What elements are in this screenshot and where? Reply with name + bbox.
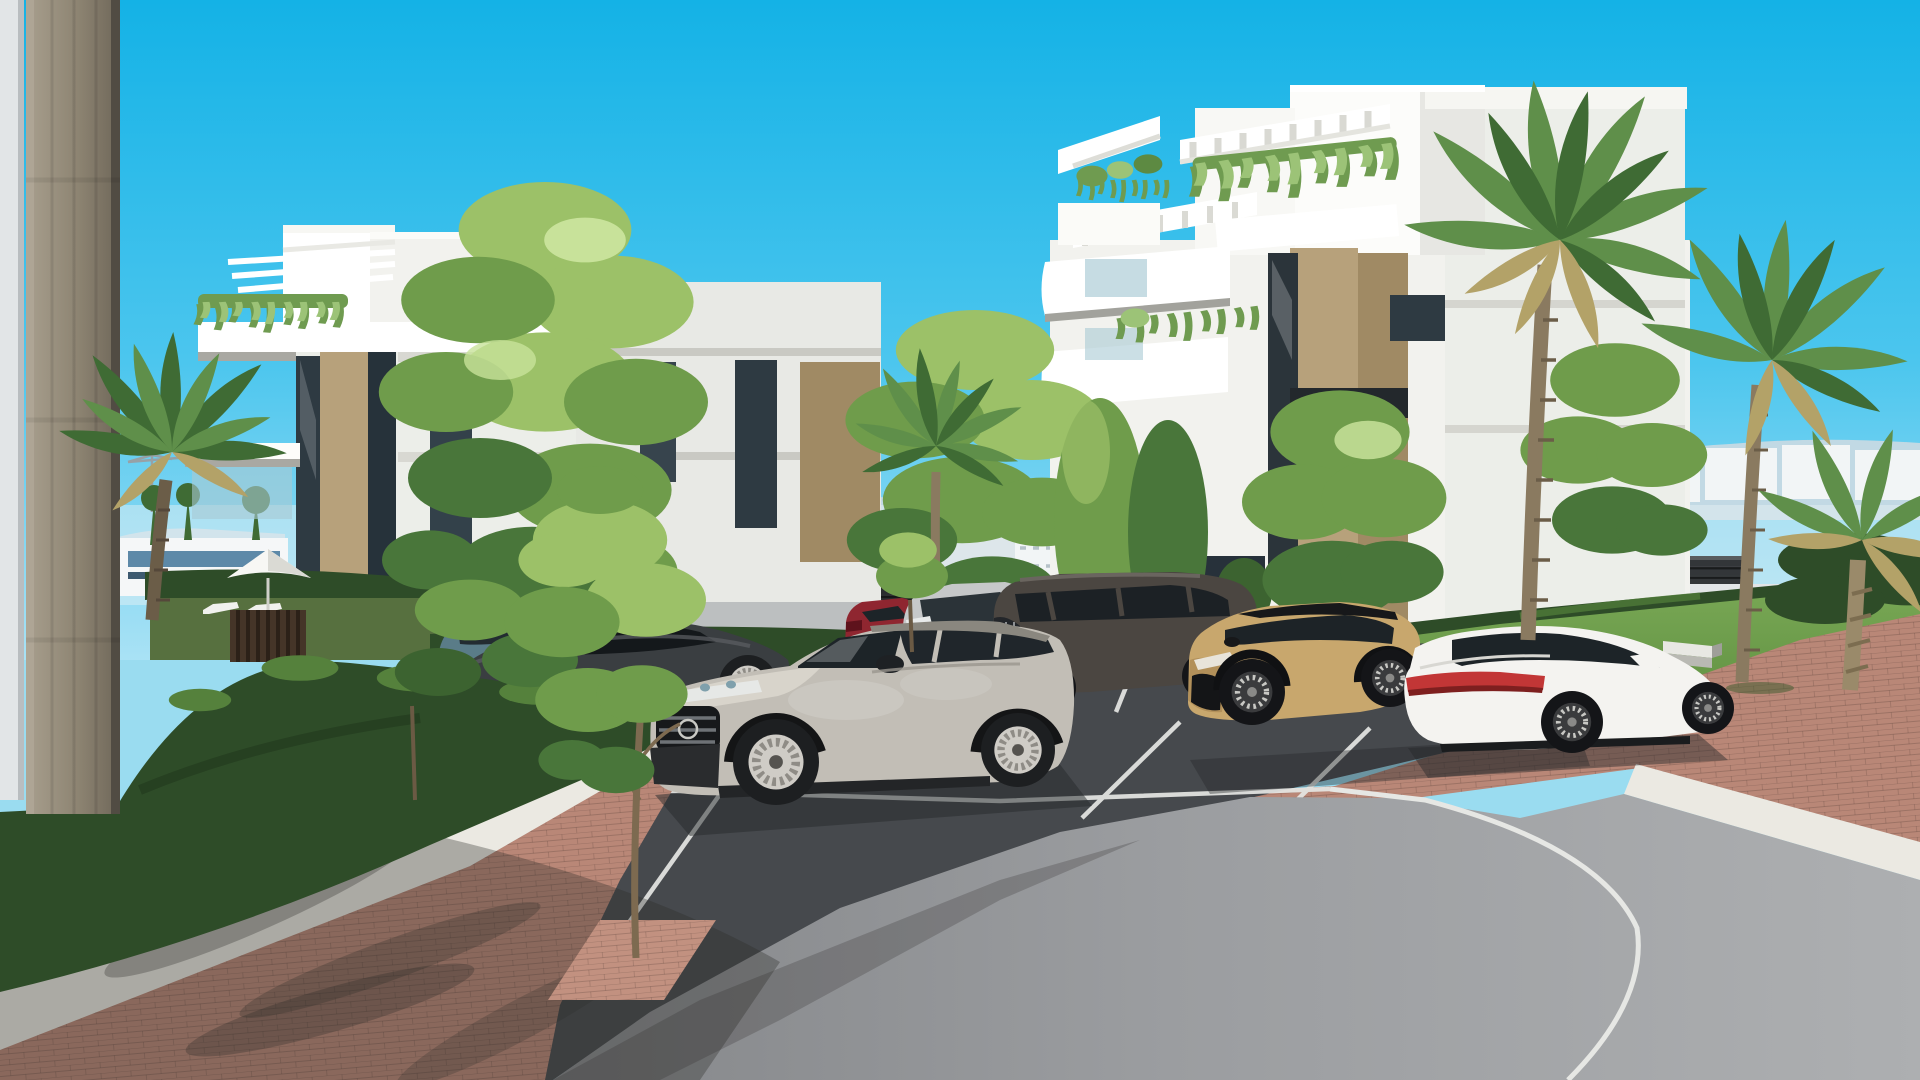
pool-gate	[230, 610, 306, 662]
architectural-render: New-build residential complex — exterior…	[0, 0, 1920, 1080]
left-wall	[0, 0, 24, 800]
concrete-pillar	[26, 0, 120, 814]
